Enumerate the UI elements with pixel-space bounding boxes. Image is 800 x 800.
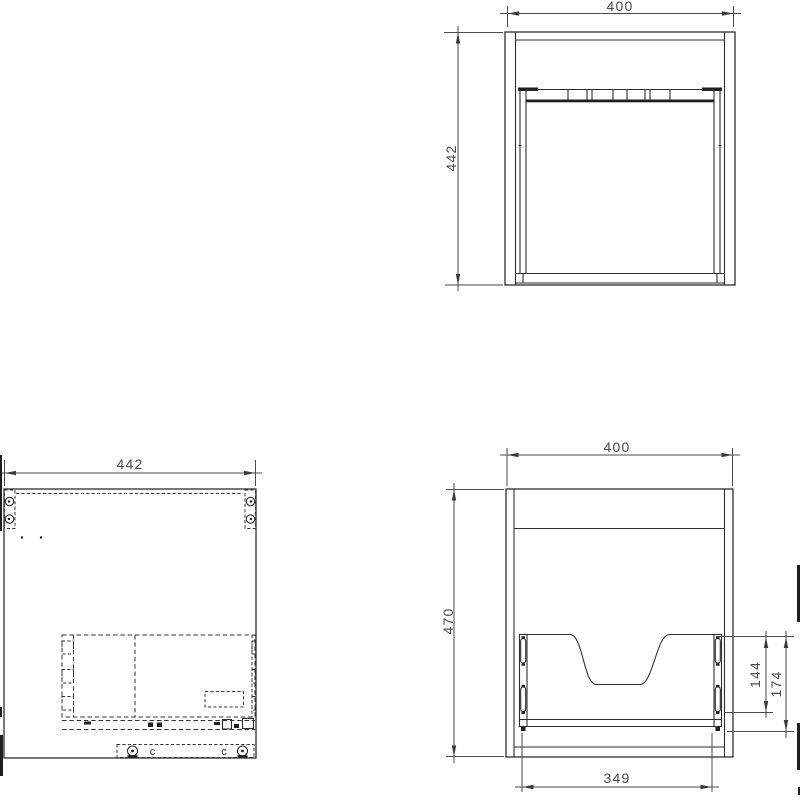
side-fitting-plate-right [245,490,256,529]
drawer-cutout-curve [527,635,714,685]
front-height-label: 470 [440,608,456,635]
plan-cabinet-outline [505,32,735,285]
plan-drawer-box [518,88,722,284]
right-drawer-slide [714,634,722,731]
cutout-height-label: 144 [747,661,763,688]
back-panel-height-label: 174 [768,671,784,698]
plan-view: 400 442 [443,0,741,291]
plan-width-label: 400 [607,0,634,14]
front-view: 400 470 [440,439,794,792]
side-width-dimension: 442 [0,456,262,486]
front-width-label: 400 [604,439,631,455]
side-bottom-fitting-strip: c c [117,745,254,759]
plan-depth-dimension: 442 [443,26,503,291]
side-width-label: 442 [117,456,144,472]
fitting-letter-left: c [150,746,156,758]
front-width-dimension: 400 [500,439,740,486]
dowel-mark [40,536,42,538]
plan-width-dimension: 400 [500,0,741,27]
cutout-height-dimensions: 144 174 [716,631,794,738]
side-panel-outline [4,489,256,758]
side-fitting-plate-left [5,490,16,529]
drawer-back-panel [527,635,714,727]
left-drawer-slide [520,634,528,731]
technical-drawing: 400 442 [0,0,800,800]
side-hidden-drawer-outline [62,635,256,730]
side-view: 442 [0,456,262,758]
drawing-sheet: 400 442 [0,0,800,800]
drawer-width-label: 349 [604,770,631,786]
plan-depth-label: 442 [443,145,459,172]
fitting-letter-right: c [221,746,227,758]
dowel-mark [21,536,23,538]
drawer-width-dimension: 349 [515,733,719,792]
front-cabinet-outline [506,489,733,757]
front-height-dimension: 470 [440,483,504,763]
